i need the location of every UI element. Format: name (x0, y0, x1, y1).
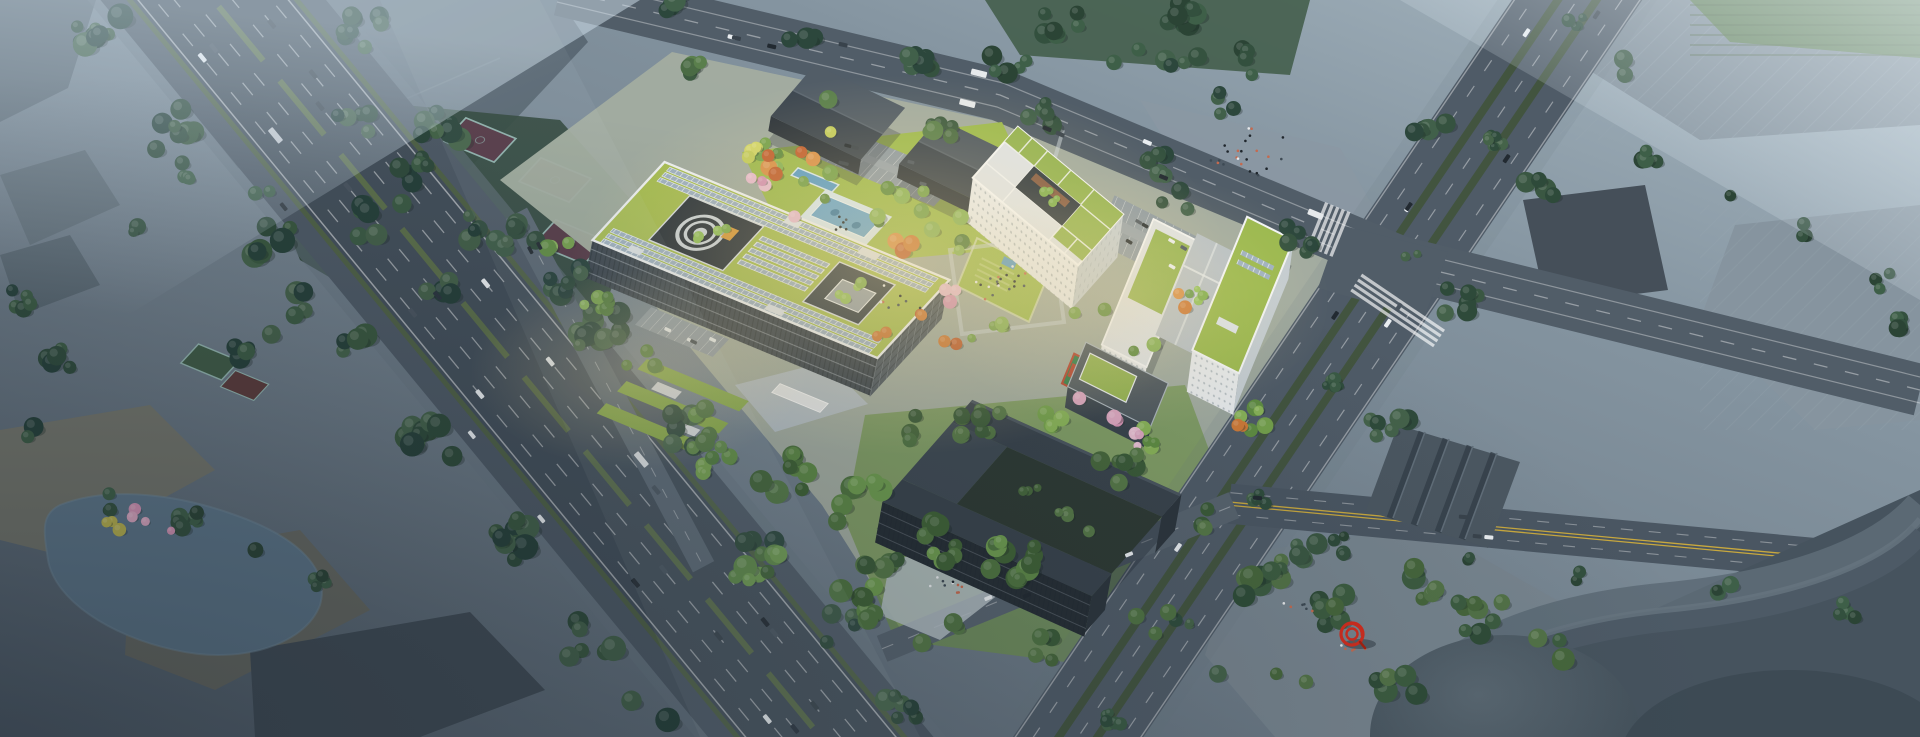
aerial-render-stage (0, 0, 1920, 737)
vignette (0, 0, 1920, 737)
atmosphere-overlays (0, 0, 1920, 737)
aerial-masterplan-rendering (0, 0, 1920, 737)
